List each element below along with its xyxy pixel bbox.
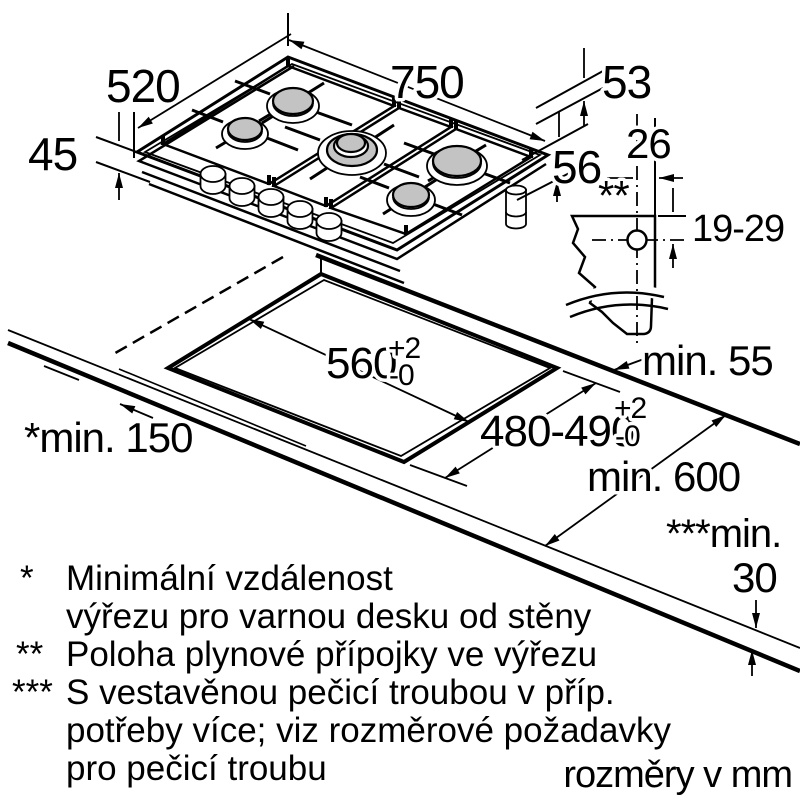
installation-diagram: 520 45 750 53 56 26 ** 19-29 min. 55 560… — [0, 0, 800, 800]
dim-19-29-label: 19-29 — [692, 208, 784, 250]
burner-cap-front-left — [228, 118, 262, 140]
dim-height-label: 45 — [28, 128, 77, 180]
burner-cap-back-right — [433, 146, 481, 176]
gas-pipe-top — [506, 186, 526, 195]
legend-line: pro pečicí troubu — [66, 749, 327, 788]
dim-min600-label: min. 600 — [587, 453, 740, 500]
burner-cap-back-left — [273, 88, 313, 114]
hob-outline-projection-dashed — [110, 257, 283, 356]
diagram-canvas: 520 45 750 53 56 26 ** 19-29 min. 55 560… — [0, 0, 800, 800]
dim-53-label: 53 — [602, 56, 651, 108]
knob-2 — [230, 178, 255, 194]
dim-arrows-min150 — [44, 366, 153, 418]
legend-marker-3: *** — [12, 673, 53, 712]
burner-cap-front-right — [393, 183, 429, 207]
gas-connection-point — [628, 231, 647, 250]
legend-line: S vestavěnou pečicí troubou v příp. — [66, 673, 615, 712]
dim-min30-value: 30 — [732, 554, 777, 601]
dim-480-tol-minus: -0 — [615, 420, 640, 453]
dim-depth-label: 520 — [106, 60, 180, 112]
legend: * Minimální vzdálenost výřezu pro varnou… — [12, 559, 792, 796]
legend-line: Poloha plynové přípojky ve výřezu — [66, 635, 597, 674]
legend-line: výřezu pro varnou desku od stěny — [66, 597, 592, 636]
legend-marker-1: * — [20, 559, 34, 598]
dim-min30-label: ***min. — [666, 512, 781, 556]
legend-marker-2: ** — [16, 635, 44, 674]
dim-min150-label: *min. 150 — [24, 414, 192, 461]
knob-5 — [317, 213, 342, 229]
gas-pipe — [506, 186, 526, 229]
dim-min55-label: min. 55 — [642, 337, 773, 384]
gas-pipe-body — [506, 190, 526, 229]
legend-line: potřeby více; viz rozměrové požadavky — [66, 711, 671, 750]
dim-width-label: 750 — [390, 56, 464, 108]
knob-4 — [288, 201, 313, 217]
dim-560-tol-minus: -0 — [389, 359, 414, 392]
knob-1 — [201, 166, 226, 182]
dim-560-label: 560 — [326, 339, 396, 388]
gas-position-marker: ** — [598, 172, 629, 219]
legend-line: Minimální vzdálenost — [66, 559, 393, 598]
dim-ticks-53 — [536, 71, 603, 124]
units-note: rozměry v mm — [563, 754, 792, 796]
dim-26-label: 26 — [626, 120, 671, 167]
knob-3 — [259, 189, 284, 205]
dim-56-label: 56 — [552, 141, 601, 193]
dim-480-label: 480-490 — [480, 407, 634, 456]
burner-cap-wok — [337, 134, 365, 152]
